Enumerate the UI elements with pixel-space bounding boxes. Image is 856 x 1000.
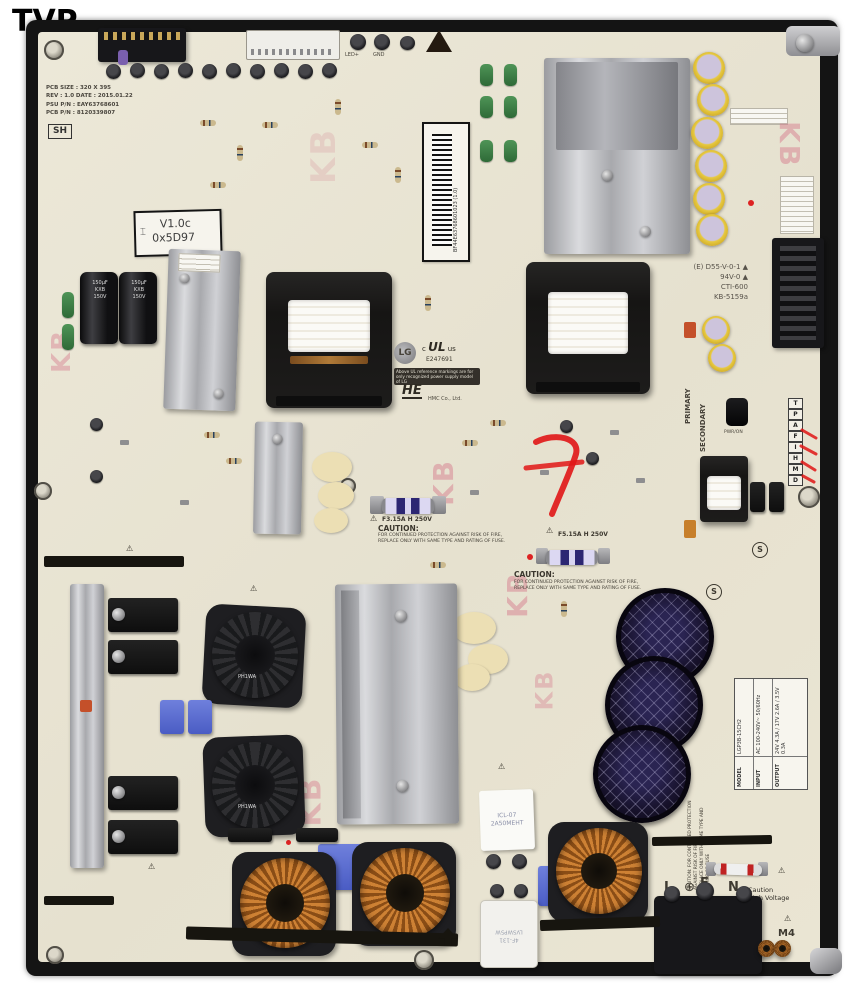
caution1-body: FOR CONTINUED PROTECTION AGAINST RISK OF…: [378, 533, 518, 545]
resistor-small: [204, 432, 220, 438]
cap-brand: KXB: [124, 287, 154, 294]
primary-label: PRIMARY: [684, 362, 692, 424]
cap-yellow: [693, 183, 725, 215]
s-mark: S: [752, 542, 768, 558]
transistor-to247: [108, 640, 178, 674]
pwr-on-label: PWR/ON: [724, 430, 743, 435]
caution2-body: FOR CONTINUED PROTECTION AGAINST RISK OF…: [514, 580, 654, 592]
red-dot: [286, 840, 291, 845]
gnd-label: GND: [373, 52, 384, 58]
resistor-small: [262, 122, 278, 128]
kb-stamp: KB: [773, 121, 806, 168]
resistor-green: [62, 324, 74, 350]
pcb-size: PCB SIZE : 320 X 395: [46, 84, 166, 92]
cap-small: [586, 452, 599, 465]
hv-line1: Caution: [748, 886, 789, 894]
fuse2-rating: F5.15A H 250V: [558, 531, 608, 538]
warning-icon: ⚠: [784, 914, 791, 923]
ac-terminal: [696, 882, 714, 900]
resistor-small: [335, 99, 341, 115]
icl-line2: 2A50MEHT: [480, 819, 534, 829]
cap-yellow: [708, 344, 736, 372]
heatsink-edge: [341, 590, 361, 818]
spec-model-value: LGP3B-15CH2: [735, 679, 753, 756]
mount-hole: [46, 946, 64, 964]
warning-icon: ⚠: [778, 866, 785, 875]
transformer-base: [536, 382, 640, 392]
spec-input-label: INPUT: [754, 756, 772, 789]
corner-screw: [796, 34, 814, 52]
ul-c: c: [422, 345, 426, 353]
resistor-green: [480, 64, 493, 86]
cap-small: [178, 63, 193, 78]
pcb-trace: [44, 556, 184, 567]
heatsink-screw: [180, 273, 190, 283]
warning-icon: ⚠: [370, 514, 377, 523]
transistor-screw: [112, 786, 125, 799]
fuse-f3: [382, 498, 434, 514]
smd-part: [610, 430, 619, 435]
pin-label: T: [788, 398, 803, 409]
heatsink-screw: [602, 170, 613, 181]
spec-output-label: OUTPUT: [773, 756, 807, 789]
toroid-mini: [758, 940, 775, 957]
spec-model-label: MODEL: [735, 756, 753, 789]
warning-icon: ⚠: [126, 544, 133, 553]
resistor-small: [430, 562, 446, 568]
connector-slots: [780, 246, 816, 340]
relay-line1: LVSWP5W: [481, 927, 537, 935]
barcode-sticker: BF44E63768601023 (1.0): [422, 122, 470, 262]
heatsink-center: [335, 583, 459, 824]
glue-blob: [454, 664, 490, 691]
smd-part: [636, 478, 645, 483]
choke-label: PH1WA: [238, 674, 256, 680]
ac-terminal: [664, 886, 680, 902]
winding-copper: [290, 356, 368, 364]
cap-bulk: [593, 725, 691, 823]
ul-us: us: [448, 345, 456, 353]
heatsink-left: [163, 249, 241, 411]
transformer-tape: [548, 292, 628, 354]
smd-part: [540, 470, 549, 475]
terminal-post: [514, 884, 528, 898]
transistor-to247: [108, 776, 178, 810]
resistor-small: [490, 420, 506, 426]
resistor-small: [395, 167, 401, 183]
heatsink-label: [178, 253, 221, 272]
rating-line: (E) D55-V-0-1 ▲: [648, 262, 748, 272]
spec-table: MODEL LGP3B-15CH2 INPUT AC 100-240V~ 50/…: [734, 678, 808, 790]
transistor-screw: [112, 650, 125, 663]
choke-black: PH1WA: [212, 612, 298, 698]
component-orange: [684, 520, 696, 538]
cap-small: [250, 64, 265, 79]
cap-small: [274, 63, 289, 78]
secondary-label: SECONDARY: [699, 372, 707, 452]
small-cap-purple: [118, 50, 128, 65]
cap-volt: 150V: [85, 294, 115, 301]
rating-line: KB-5159a: [648, 292, 748, 302]
m4-label: M4: [778, 928, 795, 939]
heatsink-screw: [395, 610, 407, 622]
spec-input-value: AC 100-240V~ 50/60Hz: [754, 679, 772, 756]
cap-yellow: [691, 117, 723, 149]
mount-hole: [414, 950, 434, 970]
resistor-green: [504, 64, 517, 86]
connector-pins: [251, 49, 333, 55]
icl-thermistor: ICL-07 2A50MEHT: [479, 789, 535, 851]
smd-part: [180, 500, 189, 505]
pcb-pn: PCB P/N : 8120339807: [46, 109, 166, 117]
connector-pins: [104, 32, 180, 40]
spec-output-value: 24V 4.3A / 17V 2.6A / 3.5V 0.3A: [773, 679, 807, 756]
cap-small: [298, 64, 313, 79]
warning-icon: ⚠: [148, 862, 155, 871]
transistor-screw: [112, 608, 125, 621]
cap-yellow: [702, 316, 730, 344]
cap-small: [560, 420, 573, 433]
cap-brand: KXB: [85, 287, 115, 294]
sh-stamp: SH: [48, 124, 72, 139]
testpoint-table: [780, 176, 814, 234]
transformer-base: [276, 396, 382, 406]
film-cap-blue: [188, 700, 212, 734]
relay-box: 4F-131 LVSWP5W: [480, 900, 538, 968]
pin-label: P: [788, 409, 803, 420]
pcb-trace: [44, 896, 114, 905]
cap-uf: 150µF: [124, 280, 154, 287]
fuse1-rating: F3.15A H 250V: [382, 516, 432, 523]
jack: [400, 36, 415, 50]
cap-electrolytic-150uf: 150µF KXB 150V: [80, 272, 118, 344]
cap-small: [322, 63, 337, 78]
smd-part: [120, 440, 129, 445]
warning-icon: ⚠: [498, 762, 505, 771]
red-dot: [748, 200, 754, 206]
cap-small: [202, 64, 217, 79]
version-line1: V1.0c: [160, 217, 191, 231]
resistor-green: [504, 96, 517, 118]
resistor-small: [362, 142, 378, 148]
heatsink-screw: [214, 388, 224, 398]
ratings-label: (E) D55-V-0-1 ▲ 94V-0 ▲ CTI-600 KB-5159a: [648, 262, 748, 303]
ul-mark: c UL us: [422, 340, 456, 354]
rating-line: 94V-0 ▲: [648, 272, 748, 282]
cap-volt: 150V: [124, 294, 154, 301]
resistor-small: [462, 440, 478, 446]
cert-block: LG c UL us E247691 Above UL reference ma…: [392, 336, 478, 406]
heatsink-left-bottom: [70, 584, 104, 868]
terminal-post: [490, 884, 504, 898]
heatsink-screw: [273, 434, 283, 444]
terminal-post: [512, 854, 527, 869]
transistor-screw: [112, 830, 125, 843]
choke-black: PH1WA: [212, 742, 298, 828]
cap-yellow: [697, 84, 729, 116]
cap-uf: 150µF: [85, 280, 115, 287]
caution1-title: CAUTION:: [378, 524, 419, 533]
pcb-rev: REV : 1.0 DATE : 2015.01.22: [46, 92, 166, 100]
transistor-to247: [108, 598, 178, 632]
caution-line: REPLACE ONLY WITH SAME TYPE AND RATING O…: [514, 586, 654, 592]
cap-label: 150µF KXB 150V: [85, 280, 115, 301]
red-dot: [527, 554, 533, 560]
heatsink-panel: [556, 62, 678, 150]
main-fuse: [714, 863, 762, 876]
transistor: [750, 482, 765, 512]
psu-pn: PSU P/N : EAY63768601: [46, 101, 166, 109]
version-tick: ⌶: [140, 227, 146, 238]
cap-small: [226, 63, 241, 78]
cap-small: [130, 63, 145, 78]
fuse-f5: [546, 550, 598, 565]
mount-hole: [34, 482, 52, 500]
red-marker-scribble: [518, 428, 602, 520]
cap-electrolytic-150uf: 150µF KXB 150V: [119, 272, 157, 344]
ul-number: E247691: [426, 356, 453, 363]
spec-table-wrap: MODEL LGP3B-15CH2 INPUT AC 100-240V~ 50/…: [734, 678, 808, 790]
led-terminal: [350, 34, 366, 50]
fuse-clip: [598, 548, 610, 564]
cap-small: [90, 418, 103, 431]
cap-pwr: [726, 398, 748, 426]
transformer-1: [266, 272, 392, 408]
resistor-green: [62, 292, 74, 318]
caution2-title: CAUTION:: [514, 570, 555, 579]
smd-part: [470, 490, 479, 495]
heatsink-mid: [253, 422, 303, 535]
pcb-info-block: PCB SIZE : 320 X 395 REV : 1.0 DATE : 20…: [46, 84, 166, 117]
terminal-post: [486, 854, 501, 869]
relay-line2: 4F-131: [481, 935, 537, 943]
main-connector: [98, 28, 186, 62]
he-logo: HE: [402, 384, 422, 399]
mount-hole: [44, 40, 64, 60]
component-orange: [80, 700, 92, 712]
cap-small: [90, 470, 103, 483]
ul-logo: UL: [428, 340, 445, 354]
cap-small: [154, 64, 169, 79]
cap-small: [106, 64, 121, 79]
heatsink-screw: [397, 780, 409, 792]
transistor-flat: [228, 828, 272, 842]
resistor-small: [425, 295, 431, 311]
glue-blob: [314, 508, 348, 533]
earth-symbol: ⊕: [684, 880, 695, 895]
choke-label: PH1WA: [238, 804, 256, 810]
resistor-small: [237, 145, 243, 161]
cap-label: 150µF KXB 150V: [124, 280, 154, 301]
resistor-small: [561, 601, 567, 617]
ac-terminal: [736, 886, 752, 902]
resistor-small: [226, 458, 242, 464]
heatsink-screw: [640, 226, 651, 237]
version-line2: 0x5D97: [152, 231, 195, 245]
warning-icon: ⚠: [250, 584, 257, 593]
resistor-green: [480, 140, 493, 162]
glue-blob: [318, 482, 354, 509]
led-label: LED+: [345, 52, 359, 58]
resistor-green: [504, 140, 517, 162]
barcode: [432, 134, 452, 246]
resistor-green: [480, 96, 493, 118]
glue-blob: [452, 612, 496, 644]
transistor-to247: [108, 820, 178, 854]
transformer-tape: [707, 476, 741, 510]
warning-icon: ⚠: [546, 526, 553, 535]
transistor: [769, 482, 784, 512]
fuse-clip: [432, 496, 446, 514]
toroid-copper: [556, 828, 642, 914]
transistor-flat: [296, 828, 338, 842]
white-connector: [246, 30, 340, 60]
mount-hole: [798, 486, 820, 508]
edge-connector: [772, 238, 824, 348]
red-check-marks: [798, 424, 820, 486]
resistor-small: [210, 182, 226, 188]
toroid-mini: [774, 940, 791, 957]
kb-stamp: KB: [530, 670, 558, 711]
cap-yellow: [696, 214, 728, 246]
kb-stamp: KB: [304, 128, 344, 184]
barcode-text: BF44E63768601023 (1.0): [453, 132, 459, 252]
gnd-terminal: [374, 34, 390, 50]
component-orange: [684, 322, 696, 338]
cap-yellow: [693, 52, 725, 84]
heatsink-top: [544, 58, 690, 254]
glue-blob: [312, 452, 352, 482]
transformer-2: [526, 262, 650, 394]
s-mark: S: [706, 584, 722, 600]
transformer-tape: [288, 300, 370, 352]
cap-yellow: [695, 150, 727, 182]
caution-line: REPLACE ONLY WITH SAME TYPE AND RATING O…: [378, 539, 518, 545]
metal-standoff: [810, 948, 842, 974]
rating-line: CTI-600: [648, 282, 748, 292]
ac-terminal-block: [654, 896, 762, 974]
resistor-small: [200, 120, 216, 126]
toroid-copper: [360, 848, 450, 938]
transformer-small: [700, 456, 748, 522]
film-cap-blue: [160, 700, 184, 734]
pcb-photo: TVP LED+ GND: [0, 0, 856, 1000]
maker-label: HMC Co., Ltd.: [428, 396, 462, 402]
lg-logo: LG: [394, 342, 416, 364]
